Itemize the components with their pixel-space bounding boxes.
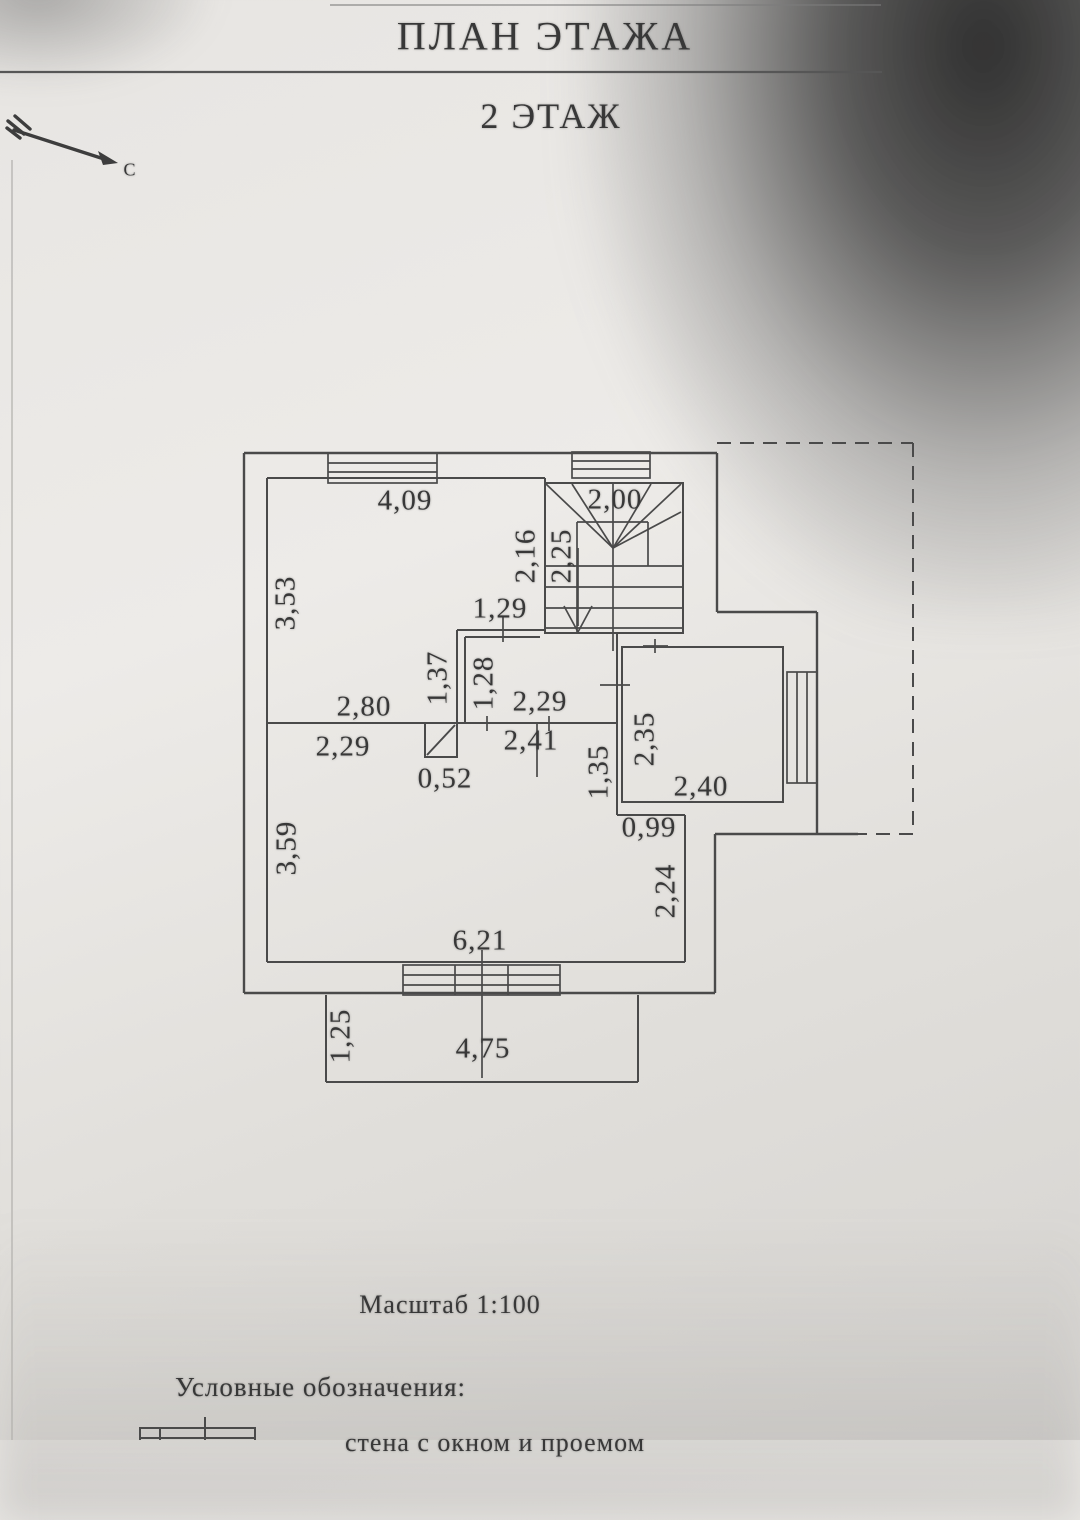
dim-partition-height: 1,35	[583, 745, 616, 800]
dim-living-right: 2,24	[650, 864, 683, 919]
dim-step-width: 0,99	[622, 812, 677, 845]
window-right-room	[787, 672, 817, 783]
dim-alcove-left: 1,37	[422, 651, 455, 706]
dim-living-top-left: 2,29	[316, 731, 371, 764]
dim-balcony-depth: 1,25	[325, 1009, 358, 1064]
page-title: ПЛАН ЭТАЖА	[397, 13, 693, 60]
dim-right-room-width: 2,40	[674, 771, 729, 804]
scale-note: Масштаб 1:100	[359, 1290, 540, 1320]
dimension-ticks	[482, 616, 668, 1078]
dim-top-room-width: 4,09	[378, 485, 433, 518]
dim-balcony-width: 4,75	[456, 1033, 511, 1066]
legend-item-text: стена с окном и проемом	[345, 1428, 645, 1458]
dim-duct: 0,52	[418, 763, 473, 796]
floor-subtitle: 2 ЭТАЖ	[480, 95, 621, 137]
window-above-stairs	[572, 452, 650, 478]
dim-hall-left: 1,28	[468, 656, 501, 711]
dim-living-bottom: 6,21	[453, 925, 508, 958]
floor-plan-drawing	[0, 0, 1080, 1440]
north-arrow-icon	[7, 116, 118, 165]
north-label: С	[123, 160, 136, 181]
terrace-dashed-outline	[717, 443, 913, 834]
photographed-floorplan-page: { "page": { "title": "ПЛАН ЭТАЖА", "subt…	[0, 0, 1080, 1440]
dim-top-room-bottom: 2,80	[337, 691, 392, 724]
dim-stair-width: 2,00	[588, 484, 643, 517]
dim-corridor-width: 2,41	[504, 725, 559, 758]
dim-right-room-height: 2,35	[629, 712, 662, 767]
dim-living-left: 3,59	[271, 821, 304, 876]
dim-hall-width: 2,29	[513, 686, 568, 719]
dim-top-room-left: 3,53	[270, 576, 303, 631]
legend-wall-glyph	[140, 1417, 255, 1440]
legend-heading: Условные обозначения:	[175, 1372, 466, 1403]
dim-top-room-right: 2,16	[510, 529, 543, 584]
dim-stair-depth: 2,25	[546, 529, 579, 584]
dim-alcove-opening: 1,29	[473, 593, 528, 626]
